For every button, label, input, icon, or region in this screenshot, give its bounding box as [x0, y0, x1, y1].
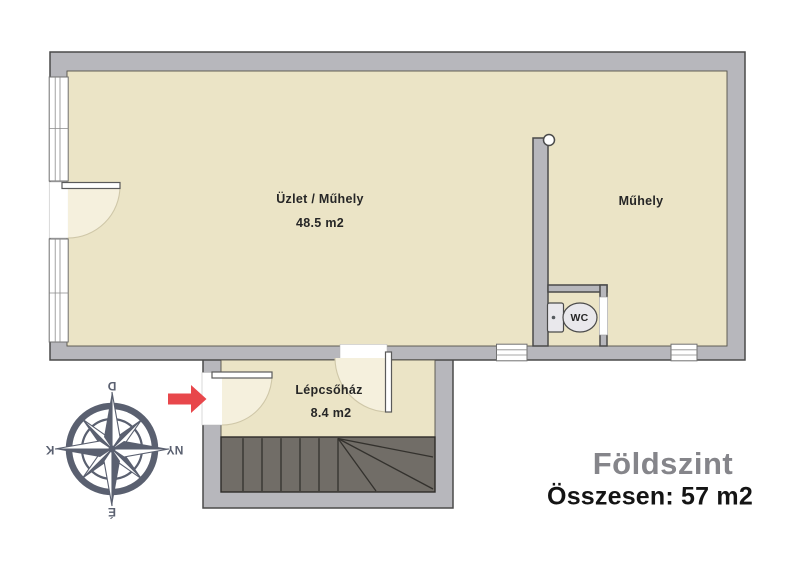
floorplan-page: D NY K É Üzlet / Műhely 48.5 m2 Műhely L… [0, 0, 800, 565]
room-label-wc: WC [571, 312, 589, 324]
compass-label-top: D [107, 379, 116, 393]
compass-label-bottom: É [108, 505, 116, 520]
floor-total-area: Összesen: 57 m2 [547, 483, 753, 512]
compass-label-right: NY [167, 443, 184, 457]
room-area-uzlet-muhely: 48.5 m2 [296, 216, 344, 230]
room-label-lepcsohaz: Lépcsőház [295, 383, 362, 397]
window [49, 77, 68, 181]
compass-rose-icon: D NY K É [37, 374, 187, 524]
room-label-muhely: Műhely [619, 194, 664, 208]
left-wall-openings [49, 77, 68, 342]
compass-points [55, 392, 169, 506]
window [49, 239, 68, 342]
compass-label-left: K [45, 443, 54, 457]
floor-title: Földszint [593, 446, 734, 482]
room-label-uzlet-muhely: Üzlet / Műhely [276, 192, 364, 206]
window [497, 344, 528, 361]
room-uzlet-muhely-floor [67, 71, 727, 346]
window [671, 344, 697, 361]
stairs [221, 437, 435, 492]
wc-door-opening [599, 297, 607, 335]
room-area-lepcsohaz: 8.4 m2 [311, 406, 352, 420]
door-opening [49, 182, 68, 238]
column-marker [544, 135, 555, 146]
